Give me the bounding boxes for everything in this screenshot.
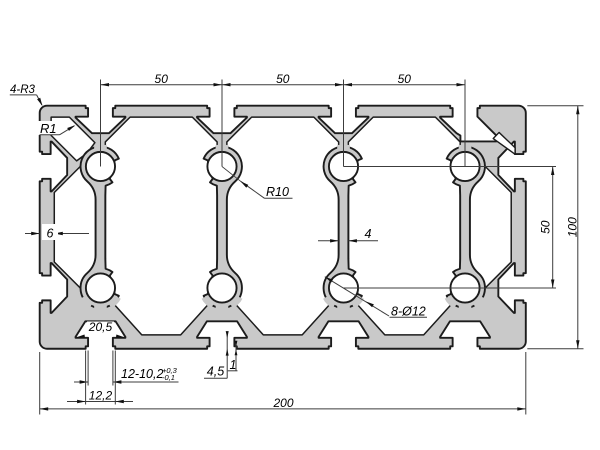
svg-text:100: 100	[565, 217, 579, 237]
svg-text:6: 6	[47, 227, 54, 241]
svg-text:-0,1: -0,1	[162, 373, 175, 382]
svg-text:12-10,2: 12-10,2	[121, 367, 163, 381]
svg-text:50: 50	[539, 220, 553, 234]
svg-text:4-R3: 4-R3	[10, 84, 36, 96]
svg-text:200: 200	[272, 396, 293, 410]
svg-text:R1: R1	[40, 121, 57, 136]
svg-text:50: 50	[155, 72, 169, 86]
svg-text:20,5: 20,5	[88, 320, 113, 334]
svg-text:12,2: 12,2	[89, 389, 113, 403]
svg-text:8-Ø12: 8-Ø12	[391, 305, 426, 319]
svg-text:50: 50	[276, 72, 290, 86]
svg-text:R10: R10	[266, 185, 289, 199]
svg-text:1: 1	[230, 358, 237, 372]
svg-text:4,5: 4,5	[207, 365, 224, 379]
svg-text:4: 4	[365, 227, 372, 241]
svg-text:50: 50	[398, 72, 412, 86]
